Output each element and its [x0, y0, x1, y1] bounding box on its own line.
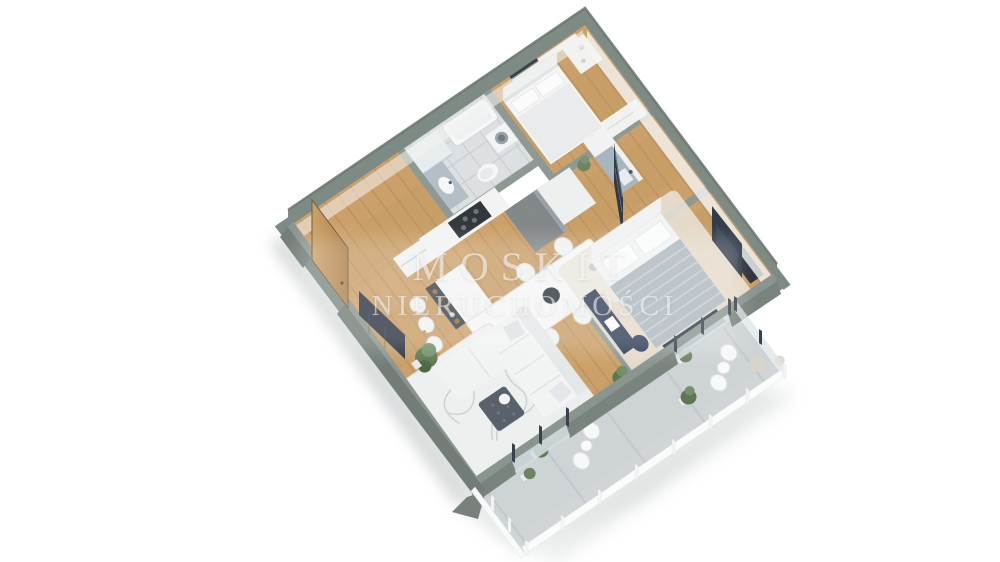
- haze-overlay: [295, 238, 740, 353]
- render-canvas: MOSKIT NIERUCHOMOŚCI: [0, 0, 1000, 562]
- floor-plan-render: [0, 0, 1000, 562]
